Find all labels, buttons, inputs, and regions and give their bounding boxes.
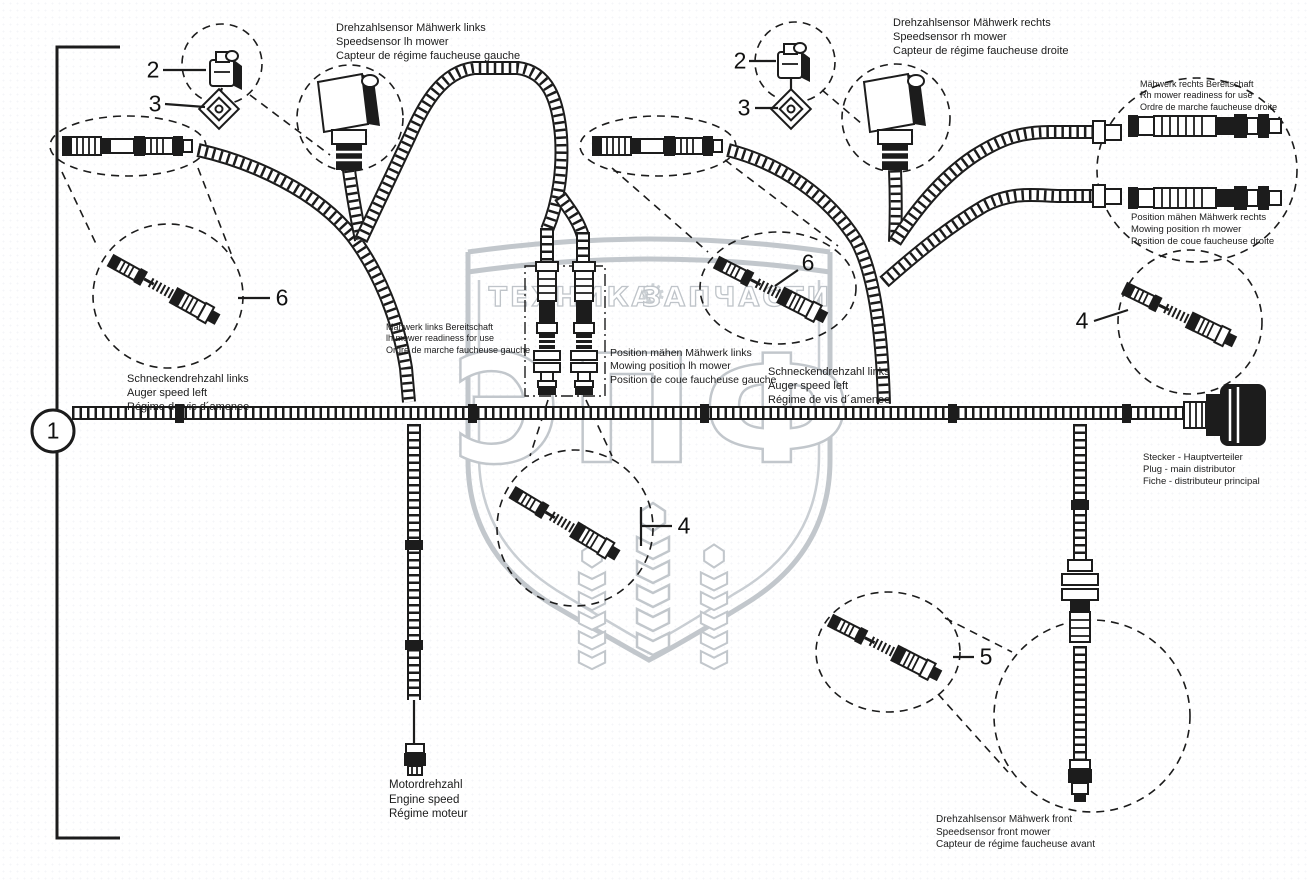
label-ready-right: Mähwerk rechts Bereitschaft Rh mower rea… (1140, 79, 1277, 113)
watermark-word-left: ТЕХНИКА (489, 282, 656, 313)
callout-6-center: 6 (802, 252, 815, 275)
engine-speed-connector (404, 744, 426, 775)
label-line: Position de coue faucheuse gauche (610, 374, 776, 387)
front-sensor-connector (1068, 760, 1092, 802)
label-line: Auger speed left (768, 380, 890, 394)
label-line: Auger speed left (127, 387, 249, 401)
cube-connector-left (210, 51, 242, 90)
label-auger-center: Schneckendrehzahl links Auger speed left… (768, 366, 890, 408)
callout-2-left: 2 (147, 59, 160, 82)
label-line: Ordre de marche faucheuse droite (1140, 102, 1277, 113)
label-line: Engine speed (389, 793, 468, 808)
label-line: Drehzahlsensor Mähwerk links (336, 22, 520, 36)
label-line: Speedsensor lh mower (336, 36, 520, 50)
label-line: Mowing position lh mower (610, 360, 776, 373)
inline-connector-center (592, 136, 722, 156)
callout-4-center: 4 (678, 515, 691, 538)
auger-sensor-left (106, 252, 222, 327)
sensor-item5 (826, 612, 944, 684)
label-line: Mähwerk links Bereitschaft (386, 322, 530, 333)
label-sensor-right: Drehzahlsensor Mähwerk rechts Speedsenso… (893, 17, 1069, 59)
label-line: Régime moteur (389, 807, 468, 822)
speed-sensor-plug-left (318, 74, 380, 170)
label-line: Régime de vis d´amenee (127, 401, 249, 415)
label-line: Position mähen Mähwerk links (610, 347, 776, 360)
callout-4-right: 4 (1076, 310, 1089, 333)
parts-diagram-page: ЭПФ ТЕХНИКА ⚙ ЗАПЧАСТИ (0, 0, 1307, 883)
label-position-left: Position mähen Mähwerk links Mowing posi… (610, 347, 776, 387)
label-engine: Motordrehzahl Engine speed Régime moteur (389, 778, 468, 822)
wiring-harness (72, 68, 1186, 762)
callout-3-left: 3 (149, 93, 162, 116)
label-ready-left: Mähwerk links Bereitschaft lh mower read… (386, 322, 530, 356)
label-line: Plug - main distributor (1143, 464, 1260, 476)
sensor-item4-right (1120, 280, 1238, 350)
diagram-canvas: ЭПФ ТЕХНИКА ⚙ ЗАПЧАСТИ (0, 0, 1307, 883)
label-line: Rh mower readiness for use (1140, 90, 1277, 101)
label-line: Drehzahlsensor Mähwerk rechts (893, 17, 1069, 31)
label-line: Drehzahlsensor Mähwerk front (936, 814, 1095, 827)
label-line: Position mähen Mähwerk rechts (1131, 212, 1274, 224)
label-sensor-front: Drehzahlsensor Mähwerk front Speedsensor… (936, 814, 1095, 852)
label-line: Capteur de régime faucheuse avant (936, 839, 1095, 852)
main-distributor-plug (1184, 384, 1266, 446)
seal-diamond-left (199, 89, 239, 129)
callout-1: 1 (47, 420, 60, 443)
front-sensor-coupling (1062, 560, 1098, 642)
label-line: Capteur de régime faucheuse droite (893, 45, 1069, 59)
label-line: Speedsensor rh mower (893, 31, 1069, 45)
label-line: lh mower readiness for use (386, 333, 530, 344)
label-line: Speedsensor front mower (936, 827, 1095, 840)
readiness-connector-right (1128, 114, 1281, 138)
label-line: Schneckendrehzahl links (127, 373, 249, 387)
label-line: Position de coue faucheuse droite (1131, 236, 1274, 248)
label-distributor: Stecker - Hauptverteiler Plug - main dis… (1143, 452, 1260, 488)
wheat-ear-icon (579, 503, 727, 669)
label-line: Schneckendrehzahl links (768, 366, 890, 380)
label-line: Mähwerk rechts Bereitschaft (1140, 79, 1277, 90)
callout-3-right: 3 (738, 97, 751, 120)
position-connector-right (1128, 186, 1281, 210)
callout-6-left: 6 (276, 287, 289, 310)
label-line: Ordre de marche faucheuse gauche (386, 345, 530, 356)
callout-5: 5 (980, 646, 993, 669)
label-line: Capteur de régime faucheuse gauche (336, 50, 520, 64)
cube-connector-right (778, 43, 810, 82)
speed-sensor-plug-right (864, 74, 926, 170)
label-line: Mowing position rh mower (1131, 224, 1274, 236)
label-position-right: Position mähen Mähwerk rechts Mowing pos… (1131, 212, 1274, 248)
label-line: Fiche - distributeur principal (1143, 476, 1260, 488)
label-auger-left: Schneckendrehzahl links Auger speed left… (127, 373, 249, 415)
inline-connector-left (62, 136, 192, 156)
label-line: Régime de vis d´amenee (768, 394, 890, 408)
label-line: Motordrehzahl (389, 778, 468, 793)
label-line: Stecker - Hauptverteiler (1143, 452, 1260, 464)
label-sensor-left: Drehzahlsensor Mähwerk links Speedsensor… (336, 22, 520, 64)
callout-2-right: 2 (734, 50, 747, 73)
